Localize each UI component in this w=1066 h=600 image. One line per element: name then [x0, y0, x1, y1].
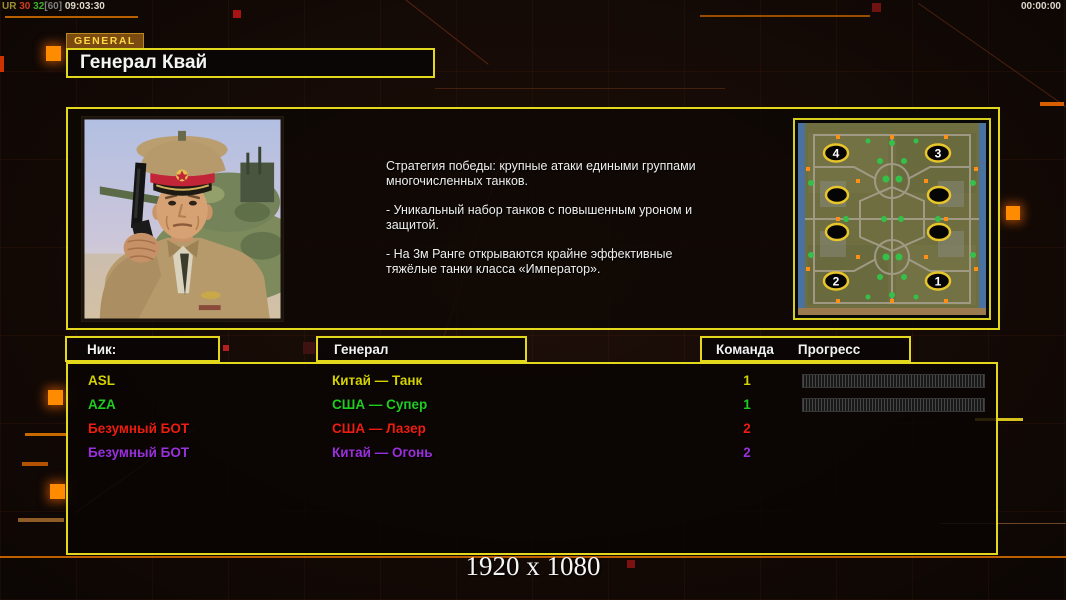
- bio-paragraph: - На 3м Ранге открываются крайне эффекти…: [386, 247, 704, 277]
- red-square: [223, 345, 229, 351]
- progress-header-label: Прогресс: [798, 342, 860, 357]
- red-sliver: [0, 56, 4, 72]
- red-square: [233, 10, 241, 18]
- player-team: 1: [734, 373, 760, 388]
- player-general: США — Супер: [332, 397, 427, 412]
- player-general: Китай — Огонь: [332, 445, 433, 460]
- players-table: ASL Китай — Танк 1 AZA США — Супер 1 Без…: [66, 362, 998, 555]
- map-image: 4 3 2 1: [798, 123, 986, 315]
- perf-part: 30: [19, 1, 33, 12]
- player-nick: AZA: [88, 397, 116, 412]
- table-row: Безумный БОТ США — Лазер 2: [68, 418, 996, 442]
- team-progress-column-header: Команда Прогресс: [700, 336, 911, 362]
- player-nick: Безумный БОТ: [88, 421, 189, 436]
- player-team: 1: [734, 397, 760, 412]
- perf-part: [60]: [44, 1, 65, 12]
- general-column-header: Генерал: [316, 336, 527, 362]
- glow-square: [50, 484, 65, 499]
- team-header-label: Команда: [716, 342, 774, 357]
- player-progress-bar: [802, 374, 985, 388]
- perf-part: 32: [33, 1, 44, 12]
- general-info-panel: Стратегия победы: крупные атаки едиными …: [66, 107, 1000, 330]
- match-timer: 00:00:00: [1021, 1, 1061, 12]
- nick-column-header: Ник:: [65, 336, 220, 362]
- table-row: AZA США — Супер 1: [68, 394, 996, 418]
- glow-square: [46, 46, 61, 61]
- page-title: Генерал Квай: [66, 48, 435, 78]
- glow-square: [48, 390, 63, 405]
- red-square: [303, 342, 315, 354]
- circuit-dash: [1040, 102, 1064, 106]
- player-nick: ASL: [88, 373, 115, 388]
- table-row: ASL Китай — Танк 1: [68, 370, 996, 394]
- player-team: 2: [734, 445, 760, 460]
- map-preview: 4 3 2 1: [793, 118, 991, 320]
- bio-text: Стратегия победы: крупные атаки едиными …: [386, 159, 704, 291]
- nick-header-label: Ник:: [87, 342, 116, 357]
- player-progress-bar: [802, 398, 985, 412]
- start-position-label: 1: [935, 275, 942, 289]
- general-tab: GENERAL: [66, 33, 144, 48]
- table-row: Безумный БОТ Китай — Огонь 2: [68, 442, 996, 466]
- general-header-label: Генерал: [334, 342, 388, 357]
- player-team: 2: [734, 421, 760, 436]
- player-nick: Безумный БОТ: [88, 445, 189, 460]
- start-position-label: 4: [833, 147, 840, 161]
- perf-overlay: UR 30 32[60] 09:03:30: [2, 1, 105, 12]
- circuit-dash: [18, 518, 64, 522]
- game-loading-screen: UR 30 32[60] 09:03:30 00:00:00 GENERAL Г…: [0, 0, 1066, 600]
- general-portrait: [81, 116, 284, 322]
- perf-part: 09:03:30: [65, 1, 105, 12]
- red-square: [872, 3, 881, 12]
- start-position-label: 2: [833, 275, 840, 289]
- circuit-line: [700, 15, 870, 17]
- bio-paragraph: Стратегия победы: крупные атаки едиными …: [386, 159, 704, 189]
- circuit-line: [918, 3, 1066, 119]
- circuit-dash: [25, 433, 67, 436]
- circuit-line: [5, 16, 138, 18]
- resolution-label: 1920 x 1080: [0, 551, 1066, 582]
- glow-square: [1006, 206, 1020, 220]
- bio-paragraph: - Уникальный набор танков с повышенным у…: [386, 203, 704, 233]
- circuit-dash: [22, 462, 48, 466]
- player-general: США — Лазер: [332, 421, 426, 436]
- circuit-line: [435, 88, 725, 89]
- perf-part: UR: [2, 1, 19, 12]
- player-general: Китай — Танк: [332, 373, 422, 388]
- start-position-label: 3: [935, 147, 942, 161]
